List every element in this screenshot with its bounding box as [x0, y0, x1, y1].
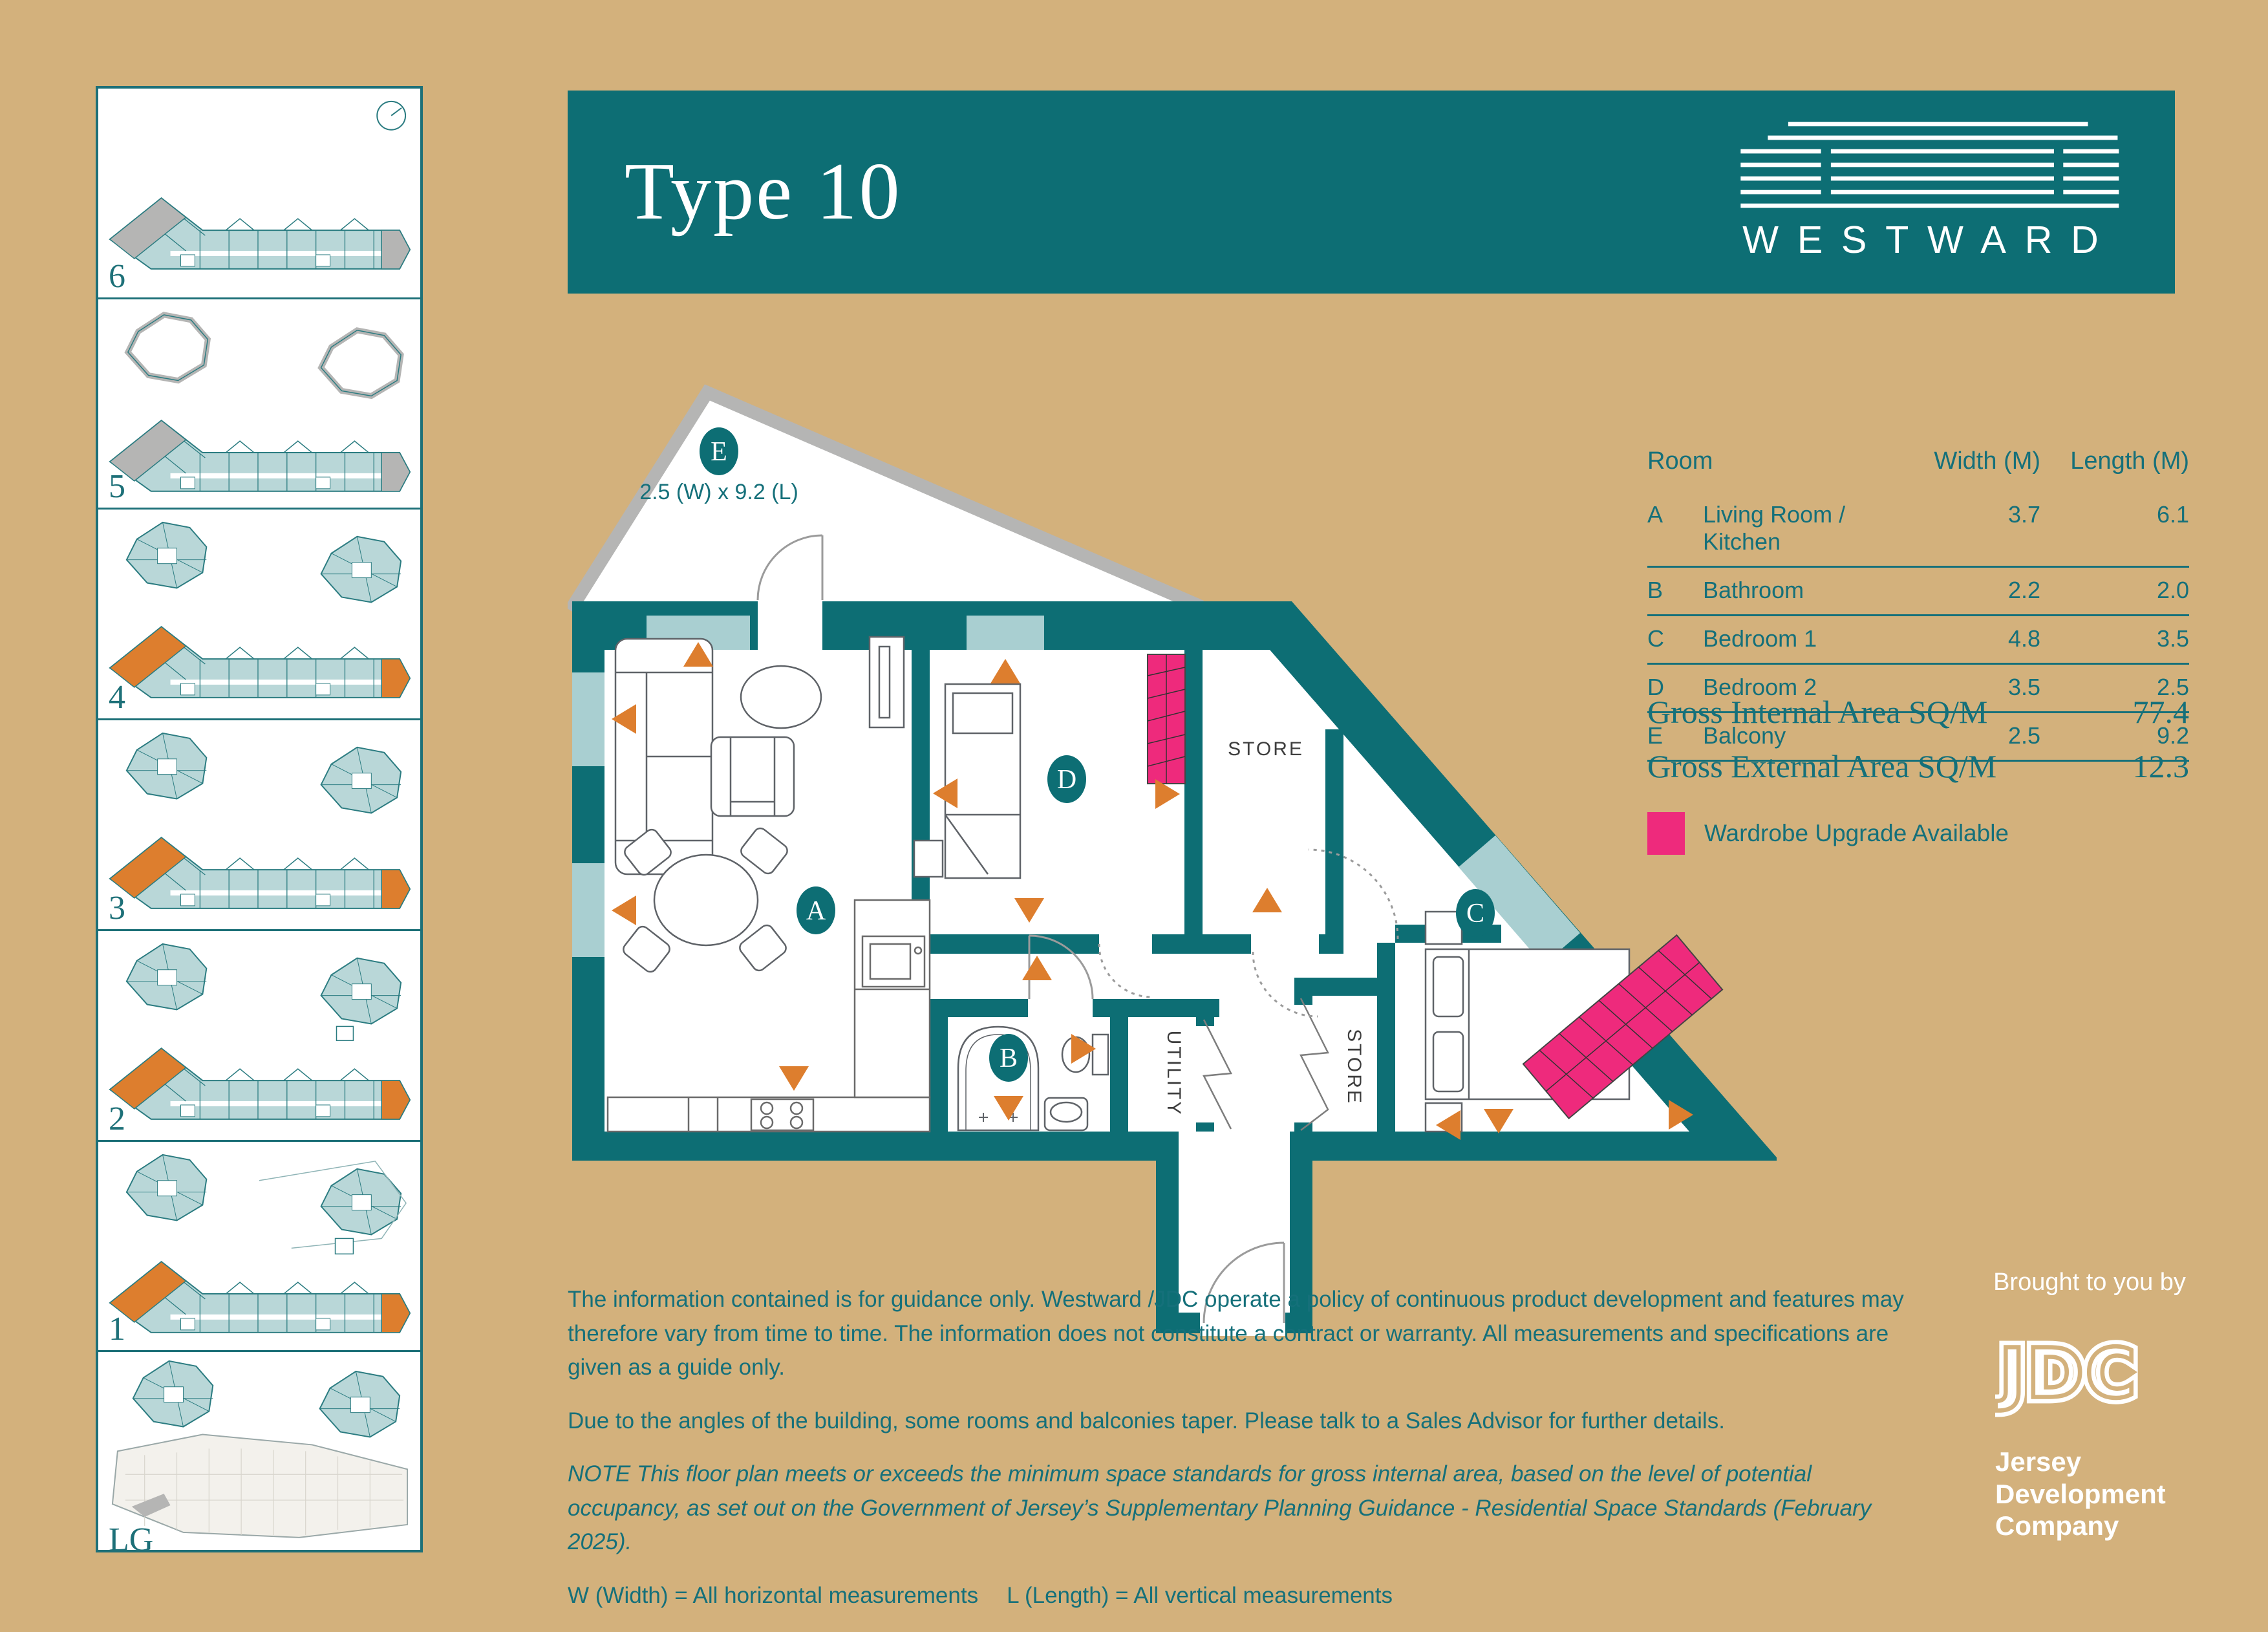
table-header: Room Width (M) Length (M): [1647, 445, 2189, 492]
floor-panel-lg: LG: [98, 1352, 420, 1561]
gross-areas: Gross Internal Area SQ/M 77.4 Gross Exte…: [1647, 693, 2189, 802]
westward-logo-lines: [1740, 124, 2119, 206]
westward-wordmark: WESTWARD: [1742, 218, 2117, 261]
row-name: Bedroom 1: [1703, 625, 1924, 652]
floor-label: 1: [109, 1313, 125, 1346]
floor-panel-1: 1: [98, 1142, 420, 1353]
floor-label: 3: [109, 892, 125, 925]
disclaimer-p1: The information contained is for guidanc…: [568, 1283, 1916, 1385]
table-row: B Bathroom 2.2 2.0: [1647, 568, 2189, 616]
wardrobe-legend: Wardrobe Upgrade Available: [1647, 812, 2009, 855]
table-row: C Bedroom 1 4.8 3.5: [1647, 616, 2189, 665]
wardrobe-legend-text: Wardrobe Upgrade Available: [1704, 820, 2009, 847]
keyplan-level-2: [98, 931, 420, 1140]
balcony-dimension: 2.5 (W) x 9.2 (L): [639, 480, 798, 504]
floor-label: 4: [109, 681, 125, 714]
utility-label: UTILITY: [1163, 1031, 1184, 1117]
row-width: 2.2: [1924, 577, 2040, 604]
company-line: Development: [1995, 1478, 2166, 1510]
col-room: Room: [1647, 447, 1924, 475]
gross-internal-value: 77.4: [2133, 693, 2190, 731]
gross-external-label: Gross External Area SQ/M: [1647, 747, 1996, 785]
gross-external-value: 12.3: [2133, 747, 2190, 785]
floor-label: 5: [109, 470, 125, 504]
wardrobe-swatch: [1647, 812, 1685, 855]
disclaimer-block: The information contained is for guidanc…: [568, 1283, 1916, 1632]
label-bedroom2: D: [1057, 765, 1076, 795]
floor-panel-4: 4: [98, 510, 420, 720]
row-name: Bathroom: [1703, 577, 1924, 604]
company-line: Jersey: [1995, 1446, 2166, 1478]
keyplan-level-3: [98, 720, 420, 929]
jdc-logo: JDC JDC: [1995, 1313, 2171, 1428]
toilet: [1093, 1035, 1108, 1075]
keyplan-level-6: [98, 89, 420, 297]
measurement-key-length: L (Length) = All vertical measurements: [1007, 1583, 1393, 1608]
floor-label: 6: [109, 260, 125, 294]
westward-logo: WESTWARD: [1717, 109, 2137, 278]
row-width: 4.8: [1924, 625, 2040, 652]
page-title: Type 10: [625, 91, 902, 294]
floor-panel-6: 6: [98, 89, 420, 299]
row-key: B: [1647, 577, 1703, 604]
measurement-key: W (Width) = All horizontal measurementsL…: [568, 1579, 1916, 1613]
header-band: Type 10 WESTWARD: [568, 91, 2175, 294]
floor-panel-5: 5: [98, 299, 420, 510]
hob: [751, 1099, 813, 1130]
company-line: Company: [1995, 1510, 2166, 1542]
measurement-key-width: W (Width) = All horizontal measurements: [568, 1583, 978, 1608]
label-balcony: E: [711, 437, 727, 467]
row-key: A: [1647, 501, 1703, 555]
brought-by-text: Brought to you by: [1986, 1269, 2193, 1296]
label-living: A: [806, 896, 826, 926]
label-bathroom: B: [1000, 1044, 1018, 1073]
disclaimer-p2: Due to the angles of the building, some …: [568, 1404, 1916, 1439]
floor-panel-2: 2: [98, 931, 420, 1142]
row-key: C: [1647, 625, 1703, 652]
keyplan-level-5: [98, 299, 420, 508]
store-top-label: STORE: [1228, 738, 1304, 760]
floorplan-brochure-page: { "header": { "title": "Type 10", "brand…: [0, 0, 2268, 1604]
company-name: Jersey Development Company: [1995, 1446, 2166, 1542]
compass-icon: [377, 102, 405, 130]
row-length: 3.5: [2040, 625, 2189, 652]
table-row: A Living Room / Kitchen 3.7 6.1: [1647, 492, 2189, 568]
disclaimer-note: NOTE This floor plan meets or exceeds th…: [568, 1457, 1916, 1560]
row-length: 2.0: [2040, 577, 2189, 604]
balcony-door-opening: [758, 599, 822, 652]
floor-key-sidebar: 6 5 4 3 2: [96, 86, 423, 1552]
keyplan-level-1: [98, 1142, 420, 1351]
store-mid-label: STORE: [1343, 1029, 1365, 1105]
gross-internal-label: Gross Internal Area SQ/M: [1647, 693, 1987, 731]
floor-panel-3: 3: [98, 720, 420, 931]
col-width: Width (M): [1924, 447, 2040, 475]
row-width: 3.7: [1924, 501, 2040, 555]
row-name: Living Room / Kitchen: [1703, 501, 1924, 555]
row-length: 6.1: [2040, 501, 2189, 555]
floor-label: 2: [109, 1102, 125, 1136]
jdc-monogram-inner: JDC: [1996, 1334, 2138, 1413]
col-length: Length (M): [2040, 447, 2189, 475]
label-bedroom1: C: [1466, 899, 1484, 929]
bedroom2-wardrobe: [1148, 654, 1185, 784]
keyplan-level-4: [98, 510, 420, 718]
floor-plan: E 2.5 (W) x 9.2 (L) A B C D STORE STORE …: [568, 359, 1803, 1342]
floor-label: LG: [109, 1523, 153, 1557]
